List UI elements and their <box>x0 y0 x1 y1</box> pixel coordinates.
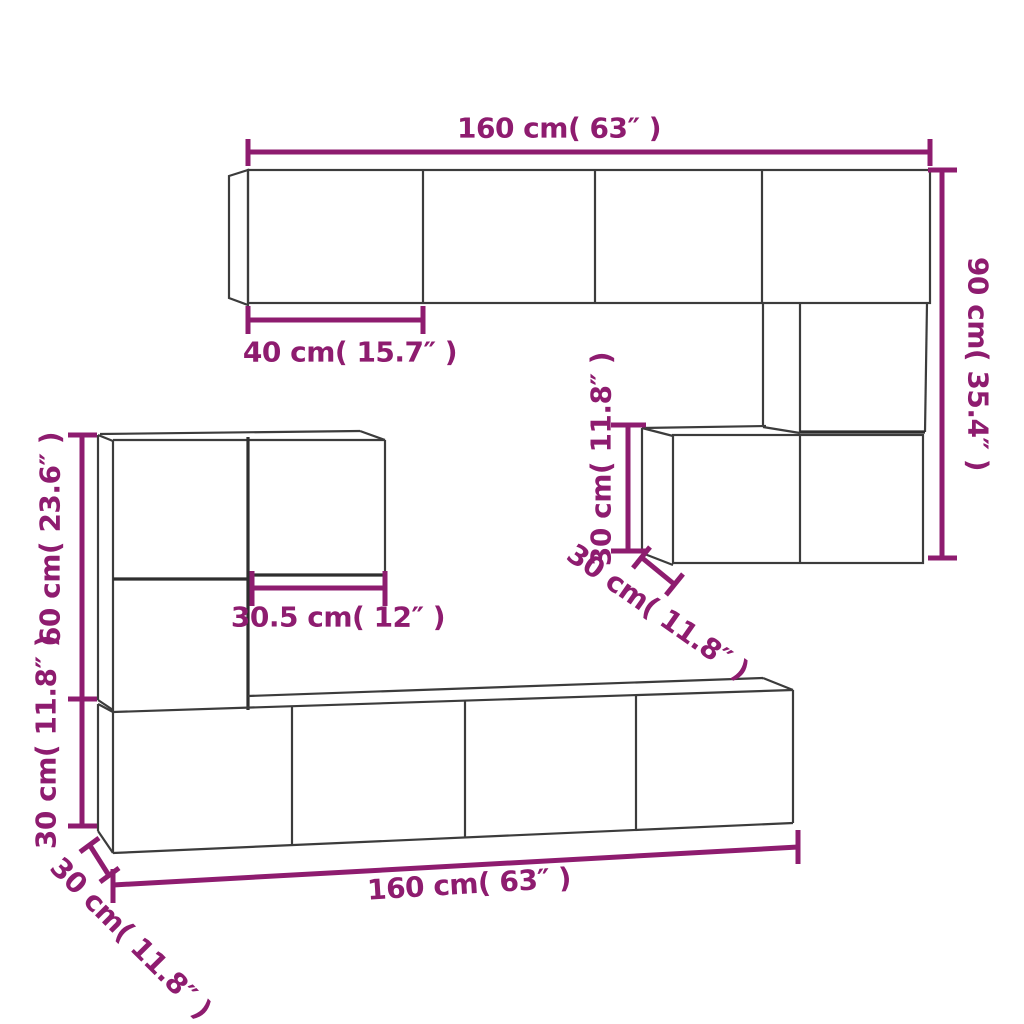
furniture-dimension-diagram: 160 cm( 63″ ) 40 cm( 15.7″ ) 90 cm( 35.4… <box>0 0 1024 1024</box>
label-right-column-height: 90 cm( 35.4″ ) <box>962 257 995 471</box>
dim-line-top-door-width <box>248 306 423 334</box>
dim-line-bench-height <box>68 699 97 826</box>
right-column-cabinet-outline <box>763 303 927 433</box>
right-small-cabinet-outline <box>642 426 923 565</box>
label-bench-height: 30 cm( 11.8″ ) <box>30 635 63 849</box>
top-wall-cabinet-outline <box>229 170 930 305</box>
left-tall-cabinet-outline <box>98 431 385 712</box>
dim-line-right-column-height <box>928 170 957 558</box>
label-top-cabinet-door-width: 40 cm( 15.7″ ) <box>243 336 457 369</box>
label-top-cabinet-width: 160 cm( 63″ ) <box>457 112 661 145</box>
label-hanging-cabinet-width: 30.5 cm( 12″ ) <box>231 601 445 634</box>
tv-bench-outline <box>98 678 793 853</box>
dim-line-left-cabinet-height <box>68 435 97 699</box>
label-left-cabinet-height: 60 cm( 23.6″ ) <box>34 432 67 646</box>
label-right-cabinet-height: 30 cm( 11.8″ ) <box>585 352 618 566</box>
